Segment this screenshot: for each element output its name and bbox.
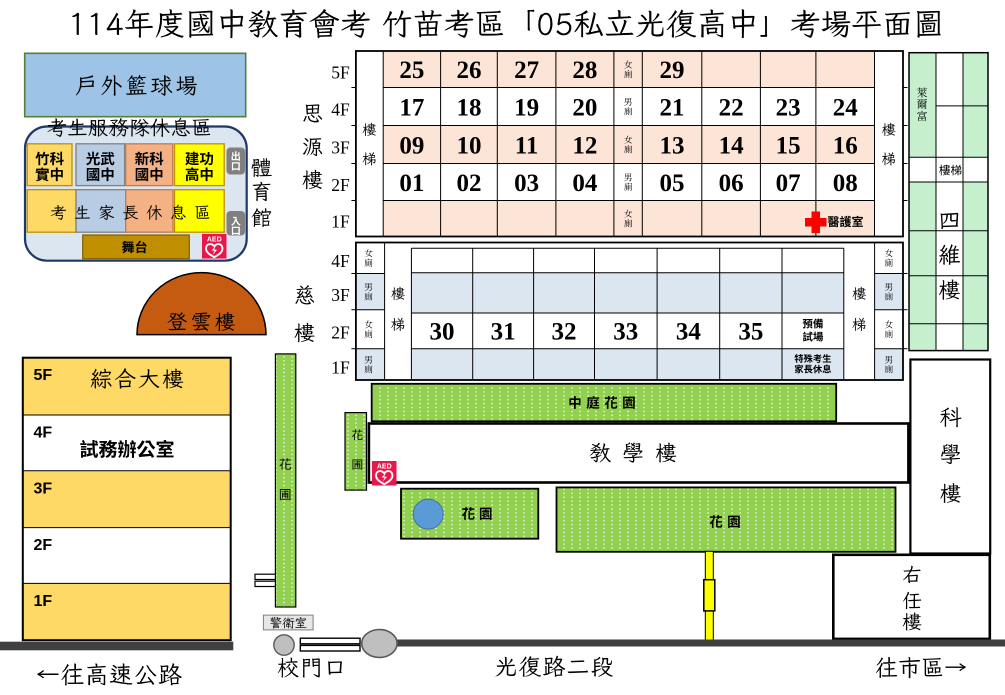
svg-text:26: 26 bbox=[456, 57, 481, 84]
svg-text:4F: 4F bbox=[34, 425, 53, 442]
svg-text:5F: 5F bbox=[331, 62, 350, 82]
svg-text:3F: 3F bbox=[34, 480, 53, 497]
svg-text:1F: 1F bbox=[331, 358, 350, 378]
svg-text:18: 18 bbox=[456, 94, 481, 121]
svg-text:28: 28 bbox=[572, 57, 597, 84]
svg-text:34: 34 bbox=[676, 319, 702, 346]
svg-text:23: 23 bbox=[776, 94, 801, 121]
svg-text:1F: 1F bbox=[331, 212, 350, 232]
svg-text:05: 05 bbox=[660, 170, 685, 197]
svg-text:30: 30 bbox=[430, 319, 455, 346]
svg-text:09: 09 bbox=[399, 132, 424, 159]
svg-text:20: 20 bbox=[572, 94, 597, 121]
svg-text:2F: 2F bbox=[331, 175, 350, 195]
svg-text:22: 22 bbox=[719, 94, 744, 121]
svg-text:2F: 2F bbox=[34, 537, 53, 554]
svg-text:1F: 1F bbox=[34, 593, 53, 610]
svg-text:31: 31 bbox=[491, 319, 516, 346]
svg-text:12: 12 bbox=[572, 132, 597, 159]
svg-text:5F: 5F bbox=[34, 367, 53, 384]
svg-text:33: 33 bbox=[613, 319, 638, 346]
svg-text:21: 21 bbox=[660, 94, 685, 121]
svg-text:25: 25 bbox=[399, 57, 424, 84]
svg-text:3F: 3F bbox=[331, 285, 350, 305]
svg-text:29: 29 bbox=[660, 57, 685, 84]
svg-text:03: 03 bbox=[514, 170, 539, 197]
svg-text:32: 32 bbox=[552, 319, 577, 346]
svg-text:01: 01 bbox=[399, 170, 424, 197]
svg-text:04: 04 bbox=[572, 170, 598, 197]
svg-text:4F: 4F bbox=[331, 100, 350, 120]
svg-text:11: 11 bbox=[515, 132, 539, 159]
svg-text:07: 07 bbox=[776, 170, 801, 197]
svg-text:AED: AED bbox=[207, 237, 222, 244]
svg-text:02: 02 bbox=[456, 170, 481, 197]
svg-text:15: 15 bbox=[776, 132, 801, 159]
svg-text:08: 08 bbox=[833, 170, 858, 197]
svg-text:27: 27 bbox=[514, 57, 539, 84]
svg-text:13: 13 bbox=[660, 132, 685, 159]
svg-text:10: 10 bbox=[456, 132, 481, 159]
svg-text:4F: 4F bbox=[331, 251, 350, 271]
svg-text:16: 16 bbox=[833, 132, 858, 159]
svg-text:2F: 2F bbox=[331, 322, 350, 342]
svg-text:24: 24 bbox=[833, 94, 859, 121]
svg-text:AED: AED bbox=[377, 464, 392, 471]
svg-text:17: 17 bbox=[399, 94, 424, 121]
svg-text:14: 14 bbox=[719, 132, 745, 159]
svg-text:35: 35 bbox=[738, 319, 763, 346]
svg-text:3F: 3F bbox=[331, 138, 350, 158]
svg-text:06: 06 bbox=[719, 170, 744, 197]
svg-text:19: 19 bbox=[514, 94, 539, 121]
